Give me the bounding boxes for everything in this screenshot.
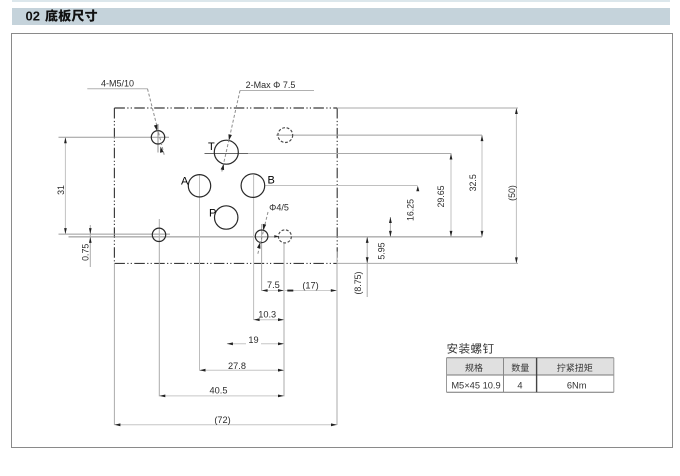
svg-text:31: 31	[56, 185, 66, 195]
svg-text:M5×45 10.9: M5×45 10.9	[451, 381, 500, 391]
svg-text:29.65: 29.65	[436, 185, 446, 207]
svg-text:02: 02	[26, 9, 40, 24]
svg-text:6Nm: 6Nm	[567, 381, 587, 391]
svg-text:(8.75): (8.75)	[353, 271, 363, 294]
svg-text:A: A	[181, 175, 189, 187]
svg-text:4-M5/10: 4-M5/10	[101, 79, 134, 89]
svg-text:(50): (50)	[507, 185, 517, 201]
svg-text:(17): (17)	[302, 281, 318, 291]
svg-text:P: P	[209, 208, 216, 220]
svg-text:Φ4/5: Φ4/5	[269, 203, 289, 213]
svg-text:32.5: 32.5	[468, 174, 478, 191]
svg-text:B: B	[268, 174, 275, 186]
svg-text:0.75: 0.75	[80, 244, 90, 261]
svg-text:7.5: 7.5	[267, 280, 280, 290]
svg-text:2-Max Φ 7.5: 2-Max Φ 7.5	[246, 80, 296, 90]
svg-text:27.8: 27.8	[228, 361, 246, 371]
svg-text:10.3: 10.3	[258, 310, 276, 320]
svg-text:T: T	[208, 141, 215, 153]
svg-text:19: 19	[248, 335, 258, 345]
svg-text:4: 4	[517, 381, 522, 391]
svg-text:(72): (72)	[214, 415, 230, 425]
svg-text:16.25: 16.25	[405, 199, 415, 221]
svg-text:40.5: 40.5	[210, 386, 228, 396]
svg-text:5.95: 5.95	[376, 242, 386, 259]
